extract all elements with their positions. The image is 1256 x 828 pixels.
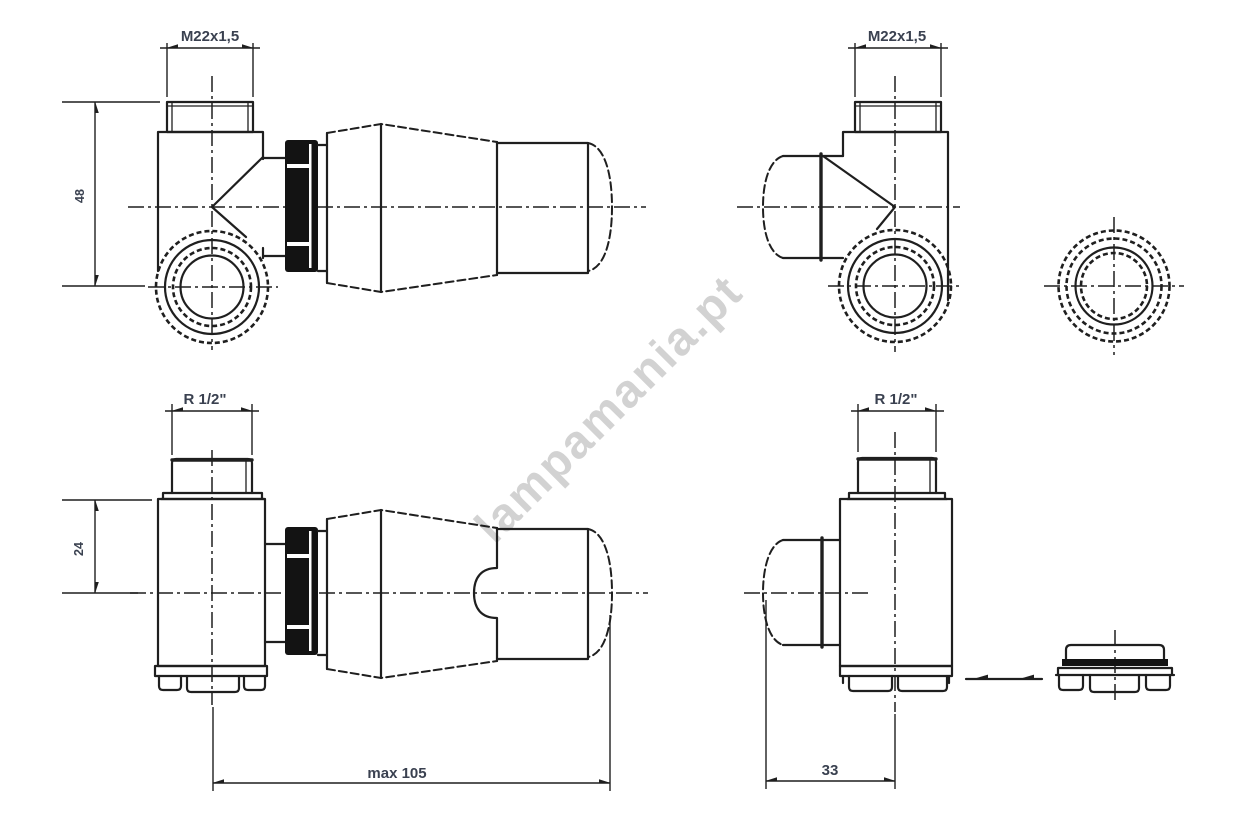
thermostatic-head — [327, 124, 612, 292]
dim-label-r12-left: R 1/2" — [184, 391, 227, 408]
dim-thread-r12: R 1/2" — [851, 391, 944, 452]
corner-diagonal — [212, 157, 263, 237]
dim-label-r12-right: R 1/2" — [875, 391, 918, 408]
dim-height-48: 48 — [62, 102, 160, 286]
bottom-nut — [155, 666, 267, 692]
dim-thread-r12: R 1/2" — [165, 391, 259, 455]
locking-ring — [285, 140, 327, 272]
technical-drawing-canvas: lampamania.pt M22x1,5 48 — [0, 0, 1256, 828]
assembly-arrow — [966, 675, 1042, 679]
head-cylinder — [497, 529, 588, 659]
locking-ring — [285, 527, 327, 655]
corner-diagonal — [823, 156, 895, 229]
dim-thread-m22: M22x1,5 — [848, 28, 948, 97]
dim-label-m22-left: M22x1,5 — [181, 28, 239, 45]
dim-label-33: 33 — [822, 762, 839, 779]
dim-label-48: 48 — [73, 189, 87, 203]
valve-body — [840, 499, 952, 666]
nut-band — [1062, 659, 1168, 666]
nut-facet-left — [1059, 675, 1083, 690]
view-top-right: M22x1,5 — [737, 28, 962, 352]
watermark-text: lampamania.pt — [464, 264, 753, 553]
valve-technical-drawing: lampamania.pt M22x1,5 48 — [0, 0, 1256, 828]
collar-lines — [318, 145, 327, 271]
head-edge-with-notch — [474, 528, 497, 661]
head-cylinder — [497, 143, 588, 273]
view-bottom-right: R 1/2" 33 — [744, 391, 1042, 789]
thread-stub — [167, 102, 253, 132]
valve-body — [158, 499, 285, 666]
dim-thread-m22: M22x1,5 — [160, 28, 260, 97]
dim-width-33: 33 — [766, 600, 895, 789]
thermostatic-head — [327, 510, 612, 678]
nut-facet-right — [1146, 675, 1170, 690]
valve-body — [823, 132, 948, 300]
neck-lines — [263, 158, 285, 258]
thread-stub — [855, 102, 941, 132]
dim-label-24: 24 — [72, 542, 86, 556]
bottom-nut — [840, 666, 952, 691]
dim-label-m22-right: M22x1,5 — [868, 28, 926, 45]
dim-label-max105: max 105 — [367, 765, 426, 782]
dim-height-24: 24 — [62, 500, 152, 593]
view-adapter-nut — [1056, 630, 1174, 703]
view-ring-front — [1044, 217, 1184, 355]
view-top-left: M22x1,5 48 — [62, 28, 646, 350]
thread-stub — [847, 458, 947, 499]
